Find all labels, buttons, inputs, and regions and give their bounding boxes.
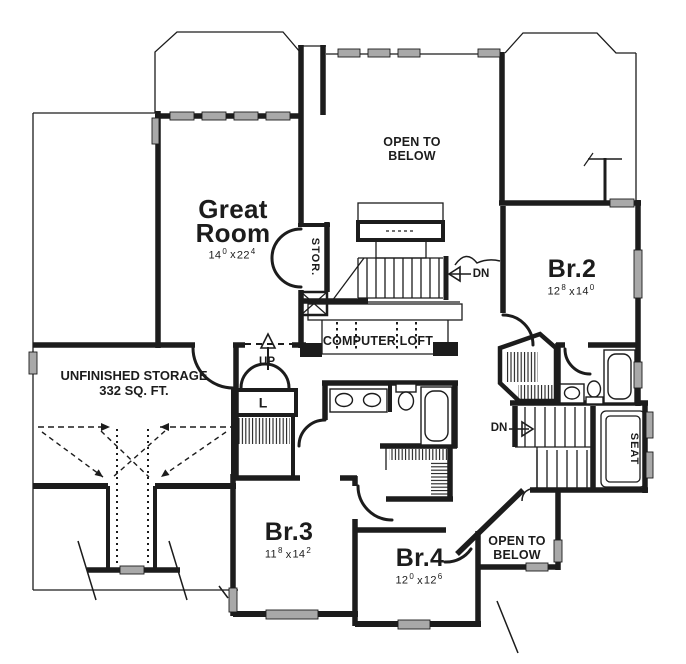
open-to-below-bottom-label: OPEN TO BELOW: [471, 534, 563, 562]
window-seat-label: SEAT: [627, 433, 639, 466]
br3-label: Br.3 118x142: [265, 519, 313, 561]
stairs-main: [515, 407, 593, 501]
br4-label: Br.4 120x126: [396, 545, 445, 587]
open-to-below-top-label: OPEN TO BELOW: [366, 135, 458, 163]
br2-label: Br.2 128x140: [548, 256, 597, 298]
stairs-upper: [332, 203, 446, 301]
hall-rail-curve: [455, 256, 500, 265]
computer-loft-label: COMPUTER LOFT: [322, 334, 434, 348]
stairs-dn-upper-label: DN: [473, 268, 490, 280]
floor-plan-page: Great Room 140x224 Br.2 128x140 Br.3 118…: [0, 0, 686, 664]
bath-fixtures-br2: [560, 350, 635, 404]
unfinished-storage-line2: 332 SQ. FT.: [60, 384, 207, 399]
attic-dashed-lines: [38, 423, 232, 564]
roof-outline: [33, 32, 636, 590]
great-room-name: Great Room: [189, 198, 277, 246]
stairs-up-label: UP: [259, 356, 275, 368]
great-room-dimensions: 140x224: [189, 248, 277, 262]
br2-dimensions: 128x140: [548, 284, 597, 298]
great-room-label: Great Room 140x224: [189, 198, 277, 262]
br2-name: Br.2: [548, 256, 597, 282]
closets: [233, 292, 556, 498]
br3-dimensions: 118x142: [265, 547, 313, 561]
stairs-dn-main-label: DN: [491, 422, 508, 434]
unfinished-storage-line1: UNFINISHED STORAGE: [60, 369, 207, 384]
br3-name: Br.3: [265, 519, 313, 545]
dn-arrow-upper-icon: [449, 267, 471, 281]
linen-closet-label: L: [259, 396, 268, 411]
floor-plan-drawing: [0, 0, 686, 664]
br4-dimensions: 120x126: [396, 573, 445, 587]
br4-name: Br.4: [396, 545, 445, 571]
unfinished-storage-label: UNFINISHED STORAGE 332 SQ. FT.: [60, 369, 207, 399]
chimney-mark: [584, 153, 622, 203]
storage-closet-label: STOR.: [308, 238, 320, 276]
